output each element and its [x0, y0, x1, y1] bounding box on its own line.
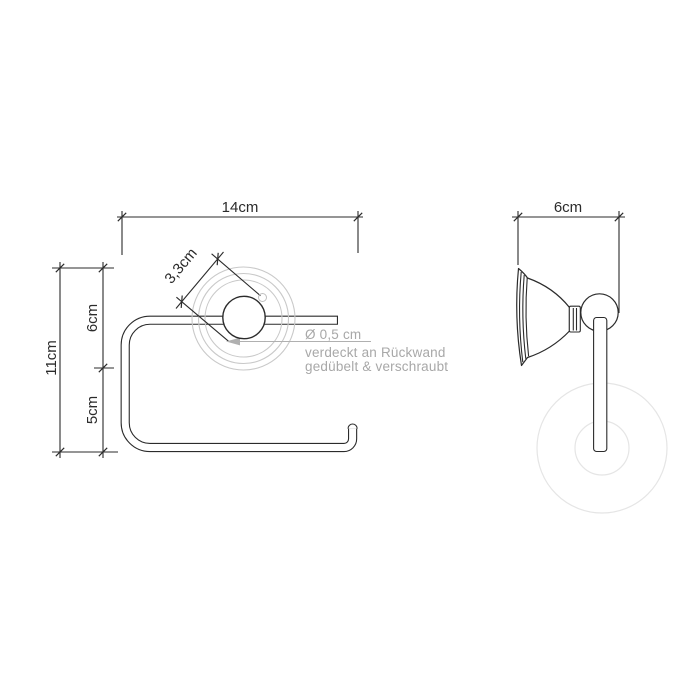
dim-width-14cm: 14cm — [117, 199, 363, 255]
dim-height-upper-label: 6cm — [84, 304, 101, 332]
mounting-note-line2: gedübelt & verschraubt — [305, 359, 448, 374]
mounting-note-line1: verdeckt an Rückwand — [305, 345, 446, 360]
dim-width-label: 14cm — [222, 199, 259, 216]
screw-diameter-label: Ø 0,5 cm — [305, 327, 361, 342]
leader-arrow-icon — [226, 338, 240, 346]
dim-height-total-label: 11cm — [43, 340, 60, 376]
rosette-knob — [223, 296, 265, 338]
drawing-svg: 6cm 14cm — [0, 0, 700, 700]
wall-mount-bell — [517, 269, 618, 452]
bell-collar — [569, 306, 580, 332]
holder-arm-side — [594, 318, 607, 452]
side-view: 6cm — [512, 199, 667, 513]
hidden-screw-marker — [259, 294, 267, 302]
technical-drawing-canvas: 6cm 14cm — [0, 0, 700, 700]
dim-tick — [181, 296, 182, 308]
front-view: 14cm 11cm 6cm 5cm 3,3cm — [43, 199, 448, 458]
dim-height-lower-label: 5cm — [84, 396, 101, 424]
dim-heights: 11cm 6cm 5cm — [43, 262, 118, 458]
hook-tip-cap — [348, 424, 357, 429]
dim-tick — [217, 253, 218, 265]
dim-depth-label: 6cm — [554, 199, 582, 216]
dim-rosette-label: 3,3cm — [161, 245, 200, 287]
